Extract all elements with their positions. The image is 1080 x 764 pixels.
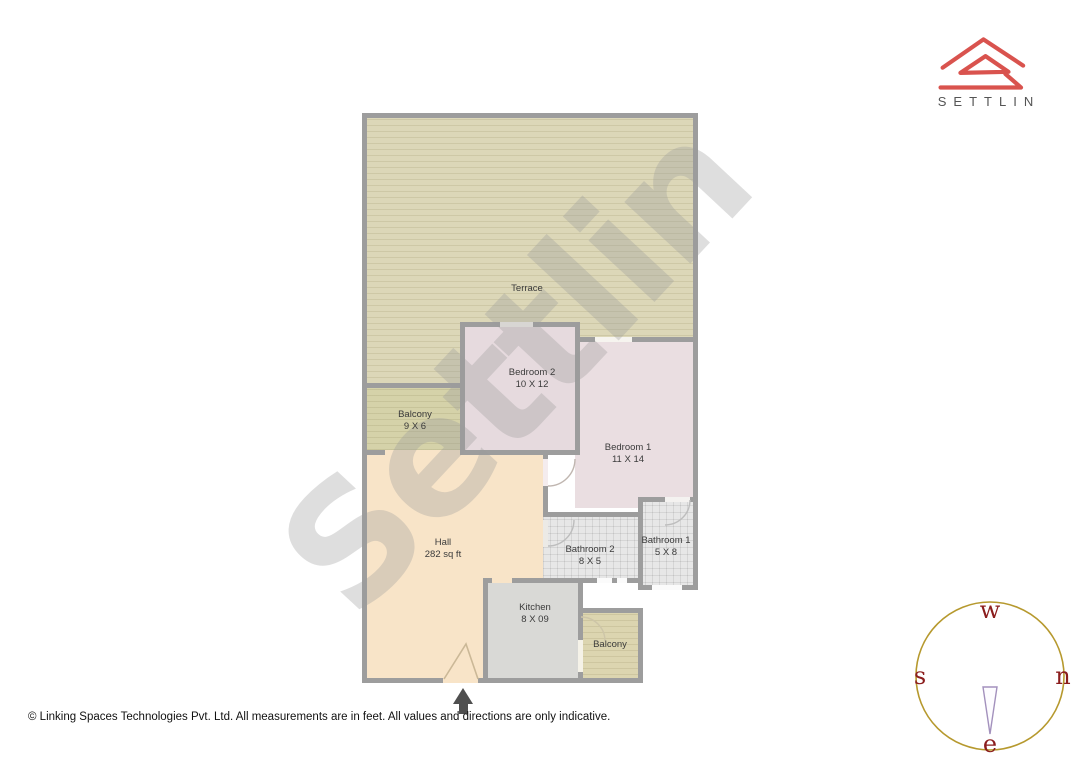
compass-letter-e: e	[983, 730, 997, 754]
room-label-bedroom2: Bedroom 2 10 X 12	[509, 367, 555, 391]
door-opening-balcony-hall	[385, 450, 460, 455]
room-name: Balcony	[398, 409, 432, 421]
wall-segment	[460, 450, 580, 455]
compass: w s n e	[912, 592, 1072, 754]
wall-segment	[693, 113, 698, 590]
room-dims: 282 sq ft	[425, 549, 461, 561]
door-opening-bedroom1-hall	[543, 459, 548, 486]
door-opening-bedroom1-terrace	[595, 337, 632, 342]
door-arc-bedroom1	[548, 459, 575, 486]
room-name: Hall	[425, 537, 461, 549]
room-kitchen	[483, 578, 583, 683]
room-dims: 10 X 12	[509, 379, 555, 391]
copyright-disclaimer: © Linking Spaces Technologies Pvt. Ltd. …	[28, 711, 610, 723]
room-dims: 9 X 6	[398, 421, 432, 433]
room-label-hall: Hall 282 sq ft	[425, 537, 461, 561]
door-opening-main-entrance	[443, 678, 478, 683]
room-label-balcony-upper: Balcony 9 X 6	[398, 409, 432, 433]
room-dims: 5 X 8	[641, 547, 690, 559]
compass-letter-s: s	[914, 662, 926, 690]
room-name: Kitchen	[519, 602, 551, 614]
window-bathroom2-a	[597, 578, 612, 583]
room-label-bathroom2: Bathroom 2 8 X 5	[565, 544, 614, 568]
room-name: Bathroom 1	[641, 535, 690, 547]
wall-segment	[460, 322, 465, 455]
compass-needle	[983, 687, 997, 734]
window-bathroom1	[652, 585, 682, 590]
room-label-bedroom1: Bedroom 1 11 X 14	[605, 442, 651, 466]
room-label-kitchen: Kitchen 8 X 09	[519, 602, 551, 626]
room-name: Bathroom 2	[565, 544, 614, 556]
wall-segment	[543, 512, 643, 517]
compass-letter-n: n	[1055, 662, 1070, 690]
room-dims: 11 X 14	[605, 454, 651, 466]
door-opening-bedroom2	[500, 322, 533, 327]
room-dims: 8 X 09	[519, 614, 551, 626]
wall-segment	[362, 678, 643, 683]
wall-segment	[362, 383, 465, 388]
wall-segment	[578, 608, 643, 613]
wall-segment	[483, 578, 488, 683]
room-name: Terrace	[511, 283, 543, 294]
compass-letter-w: w	[980, 596, 1001, 624]
wall-segment	[575, 337, 698, 342]
wall-segment	[638, 608, 643, 683]
room-label-terrace: Terrace	[511, 283, 543, 295]
room-name: Balcony	[593, 639, 627, 650]
settlin-wordmark: SETTLIN	[938, 94, 1040, 109]
room-bedroom1	[575, 337, 698, 508]
room-dims: 8 X 5	[565, 556, 614, 568]
room-name: Bedroom 1	[605, 442, 651, 454]
wall-segment	[362, 113, 698, 118]
door-opening-kitchen-balcony	[578, 640, 583, 672]
wall-segment	[362, 113, 367, 683]
room-name: Bedroom 2	[509, 367, 555, 379]
door-opening-kitchen	[492, 578, 512, 583]
room-label-bathroom1: Bathroom 1 5 X 8	[641, 535, 690, 559]
door-opening-bathroom2	[543, 520, 548, 547]
room-label-balcony-lower: Balcony	[593, 639, 627, 651]
settlin-logo-icon	[928, 30, 1043, 98]
door-opening-bathroom1	[665, 497, 690, 502]
window-bathroom2-b	[617, 578, 627, 583]
